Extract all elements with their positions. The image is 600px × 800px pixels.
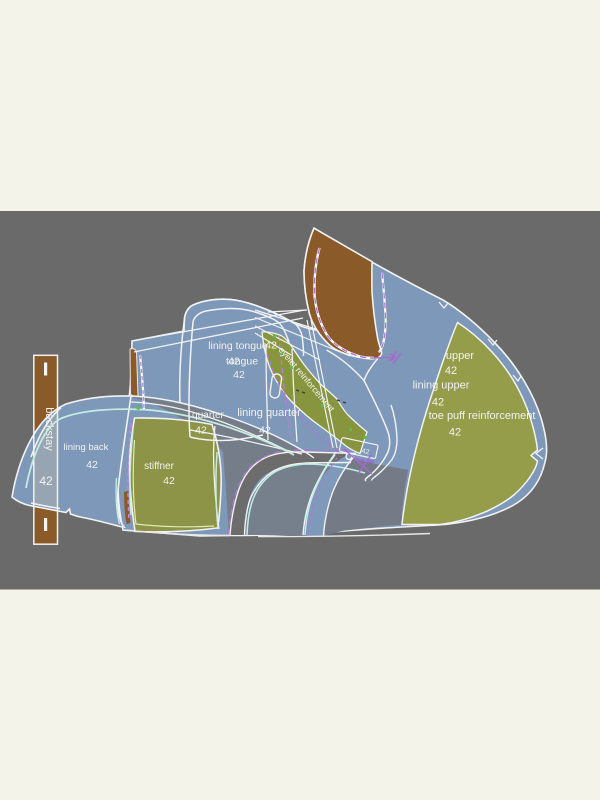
svg-text:42: 42 <box>233 369 245 381</box>
svg-text:42: 42 <box>449 427 461 439</box>
svg-text:42: 42 <box>445 365 457 377</box>
svg-text:42: 42 <box>39 474 53 488</box>
svg-text:lining upper: lining upper <box>413 380 470 392</box>
svg-text:42: 42 <box>163 475 175 487</box>
svg-text:toe puff reinforcement: toe puff reinforcement <box>429 410 536 422</box>
svg-text:42: 42 <box>86 459 98 471</box>
svg-text:lining quarter: lining quarter <box>237 407 301 419</box>
svg-text:42: 42 <box>195 425 207 437</box>
svg-text:upper: upper <box>446 350 474 362</box>
svg-text:lining back: lining back <box>64 442 109 453</box>
svg-text:42: 42 <box>228 356 240 368</box>
svg-text:quarter: quarter <box>192 410 224 421</box>
svg-text:42: 42 <box>432 397 444 409</box>
svg-text:stiffner: stiffner <box>144 461 174 472</box>
svg-text:lining tongue: lining tongue <box>208 340 268 352</box>
svg-text:42: 42 <box>259 425 271 437</box>
svg-text:42: 42 <box>265 340 277 352</box>
